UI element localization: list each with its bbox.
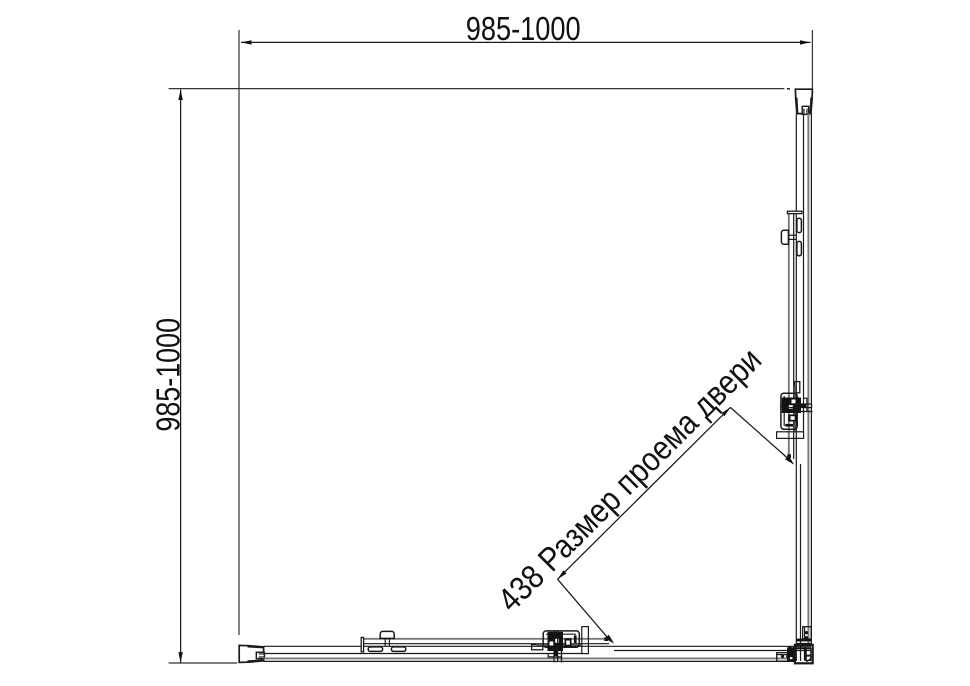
- svg-text:985-1000: 985-1000: [466, 10, 581, 47]
- svg-text:438 Размер проема двери: 438 Размер проема двери: [491, 341, 769, 619]
- svg-text:985-1000: 985-1000: [150, 318, 187, 432]
